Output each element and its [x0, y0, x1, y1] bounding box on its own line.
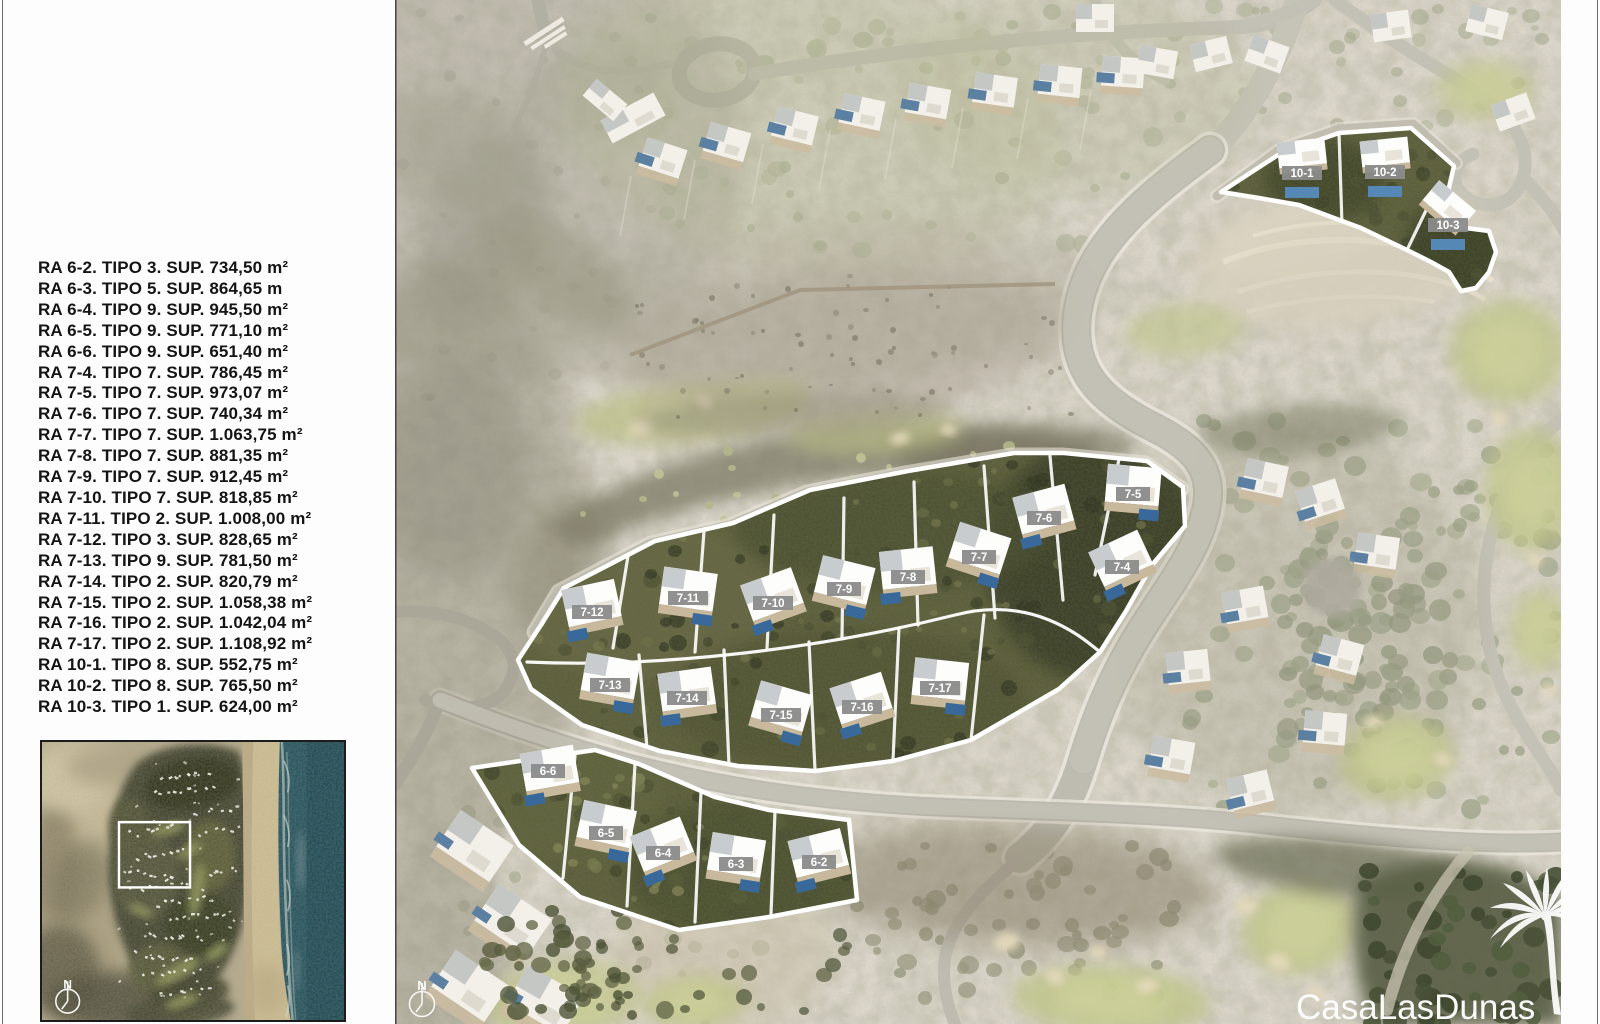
svg-text:7-6: 7-6: [1036, 513, 1053, 525]
svg-text:7-7: 7-7: [971, 552, 988, 564]
svg-text:10-2: 10-2: [1373, 167, 1396, 179]
svg-text:7-16: 7-16: [850, 702, 873, 714]
svg-text:10-3: 10-3: [1436, 220, 1459, 232]
svg-text:7-4: 7-4: [1114, 562, 1131, 574]
svg-text:7-5: 7-5: [1125, 489, 1142, 501]
svg-text:7-13: 7-13: [598, 680, 621, 692]
svg-text:6-5: 6-5: [598, 828, 615, 840]
svg-text:CasaLasDunas: CasaLasDunas: [1296, 988, 1535, 1024]
svg-text:7-8: 7-8: [900, 572, 917, 584]
svg-text:6-6: 6-6: [540, 766, 557, 778]
svg-text:6-2: 6-2: [811, 857, 828, 869]
svg-text:7-11: 7-11: [677, 593, 700, 605]
svg-text:7-9: 7-9: [836, 584, 853, 596]
svg-text:7-14: 7-14: [675, 693, 699, 705]
svg-text:7-12: 7-12: [580, 607, 603, 619]
svg-text:7-10: 7-10: [761, 598, 784, 610]
svg-text:N: N: [417, 978, 426, 993]
svg-text:N: N: [63, 977, 72, 991]
svg-text:7-15: 7-15: [769, 710, 793, 722]
svg-text:10-1: 10-1: [1290, 168, 1314, 180]
svg-text:7-17: 7-17: [928, 683, 951, 695]
svg-text:6-3: 6-3: [728, 859, 745, 871]
svg-text:6-4: 6-4: [655, 848, 672, 860]
